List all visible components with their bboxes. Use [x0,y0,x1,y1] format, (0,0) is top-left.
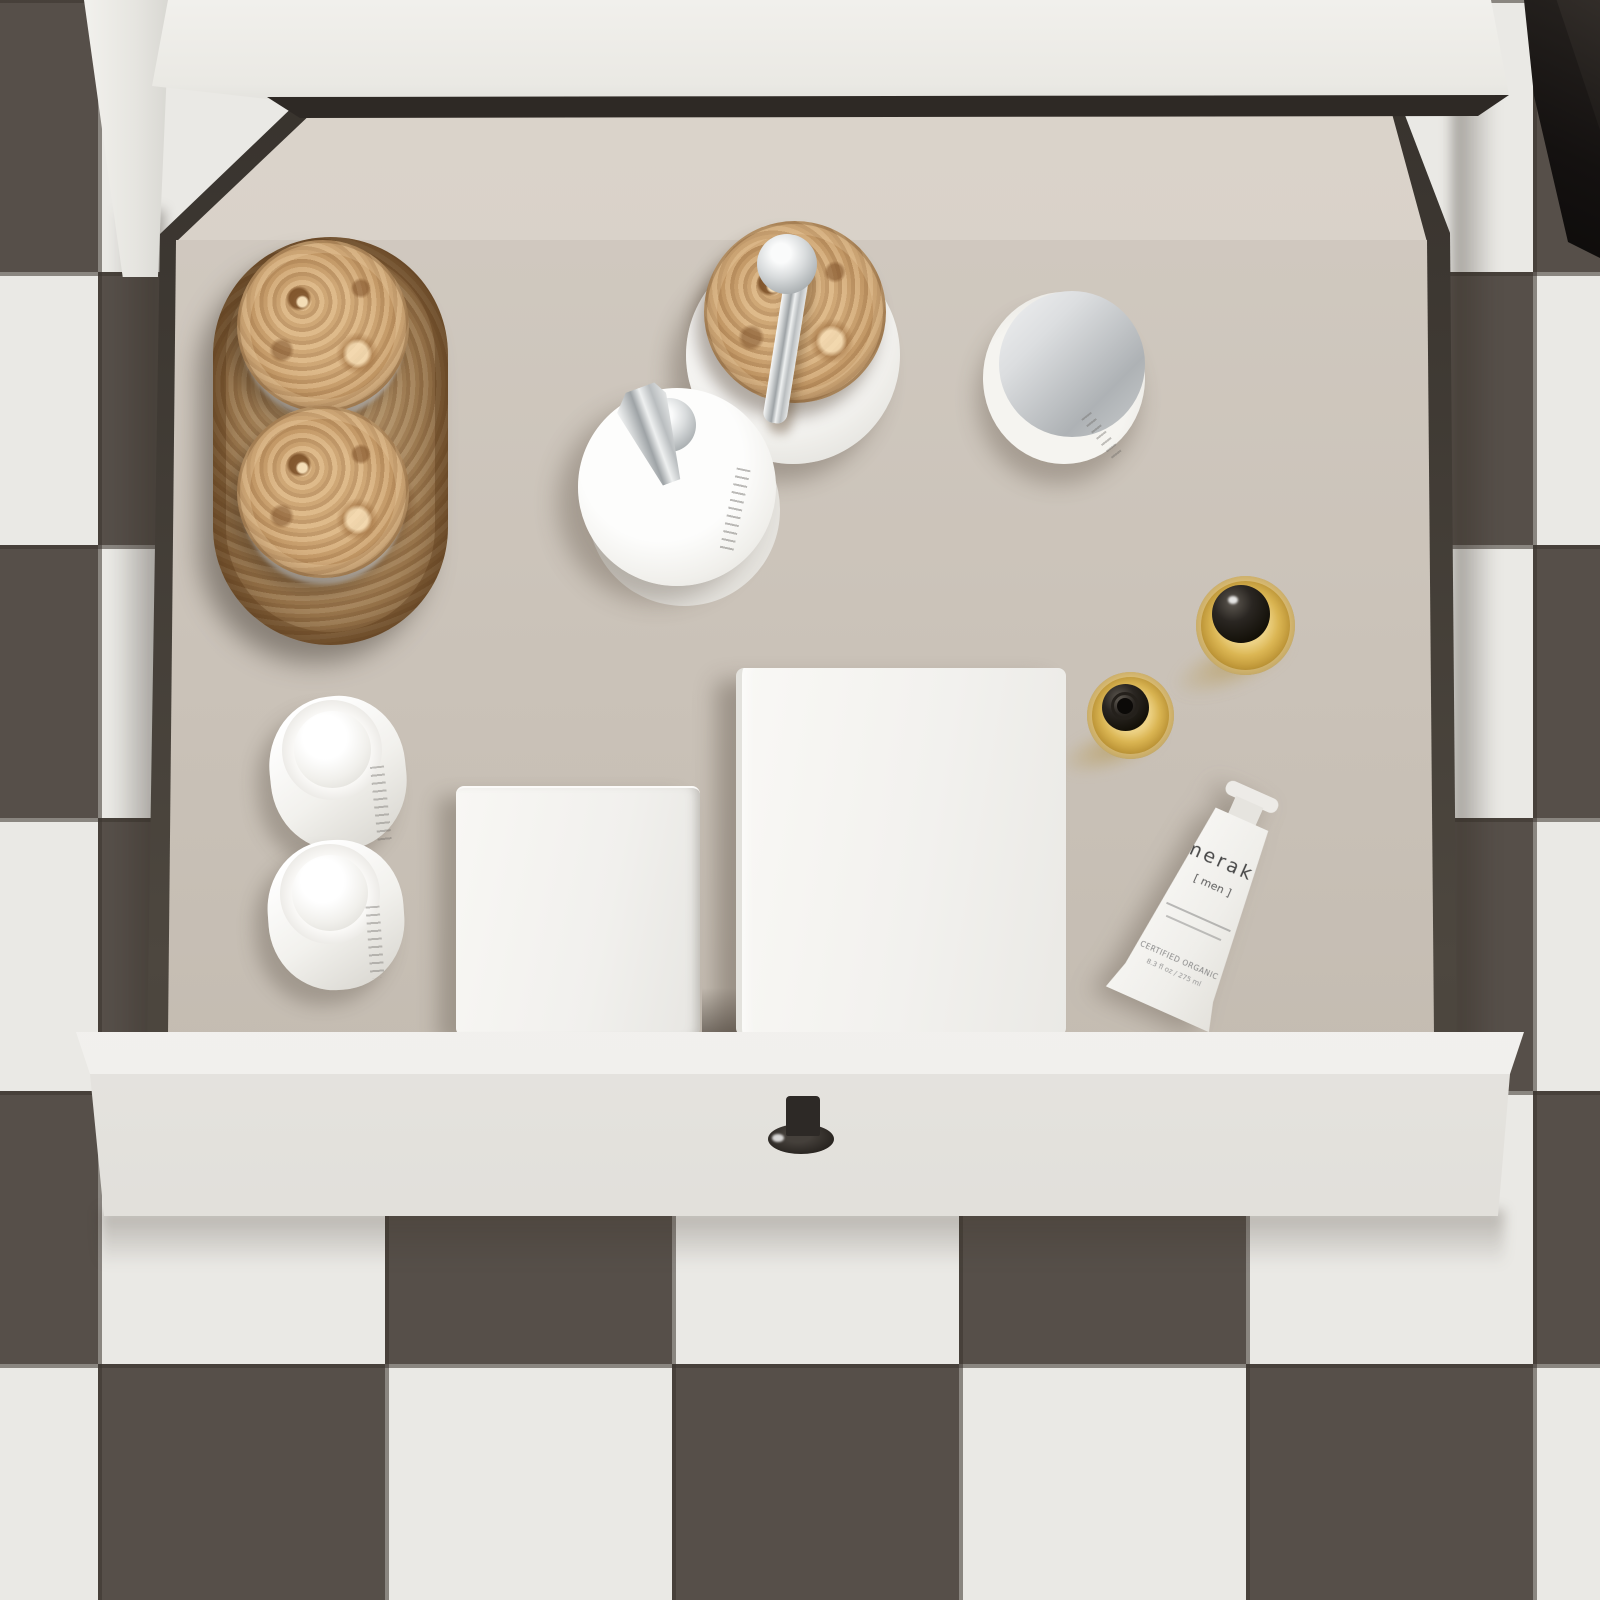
dome-bottle-cap [292,855,368,931]
dropper-nub [1117,698,1133,714]
chrome-jar-lid [999,291,1145,437]
wooden-jar-lid [237,240,409,412]
dome-bottle-cap [294,711,371,788]
bathroom-drawer-scene: meraki [ men ] CERTIFIED ORGANIC 8.3 fl … [0,0,1600,1600]
wooden-jar-lid [237,406,409,578]
drawer-knob-highlight [772,1134,784,1142]
tube-description-line [1166,902,1231,932]
white-box-large [736,668,1066,1036]
amber-bottle-cap-large [1212,585,1270,643]
tube-description-line [1166,915,1222,941]
drawer-knob-stem [786,1096,820,1136]
box-gap-shadow [702,988,740,1036]
soap-pump-head [757,234,817,294]
white-box-small [456,786,700,1036]
under-drawer-shadow [100,1210,1504,1266]
cap-highlight [1228,596,1238,604]
floor-shadow-right [1452,90,1496,1050]
